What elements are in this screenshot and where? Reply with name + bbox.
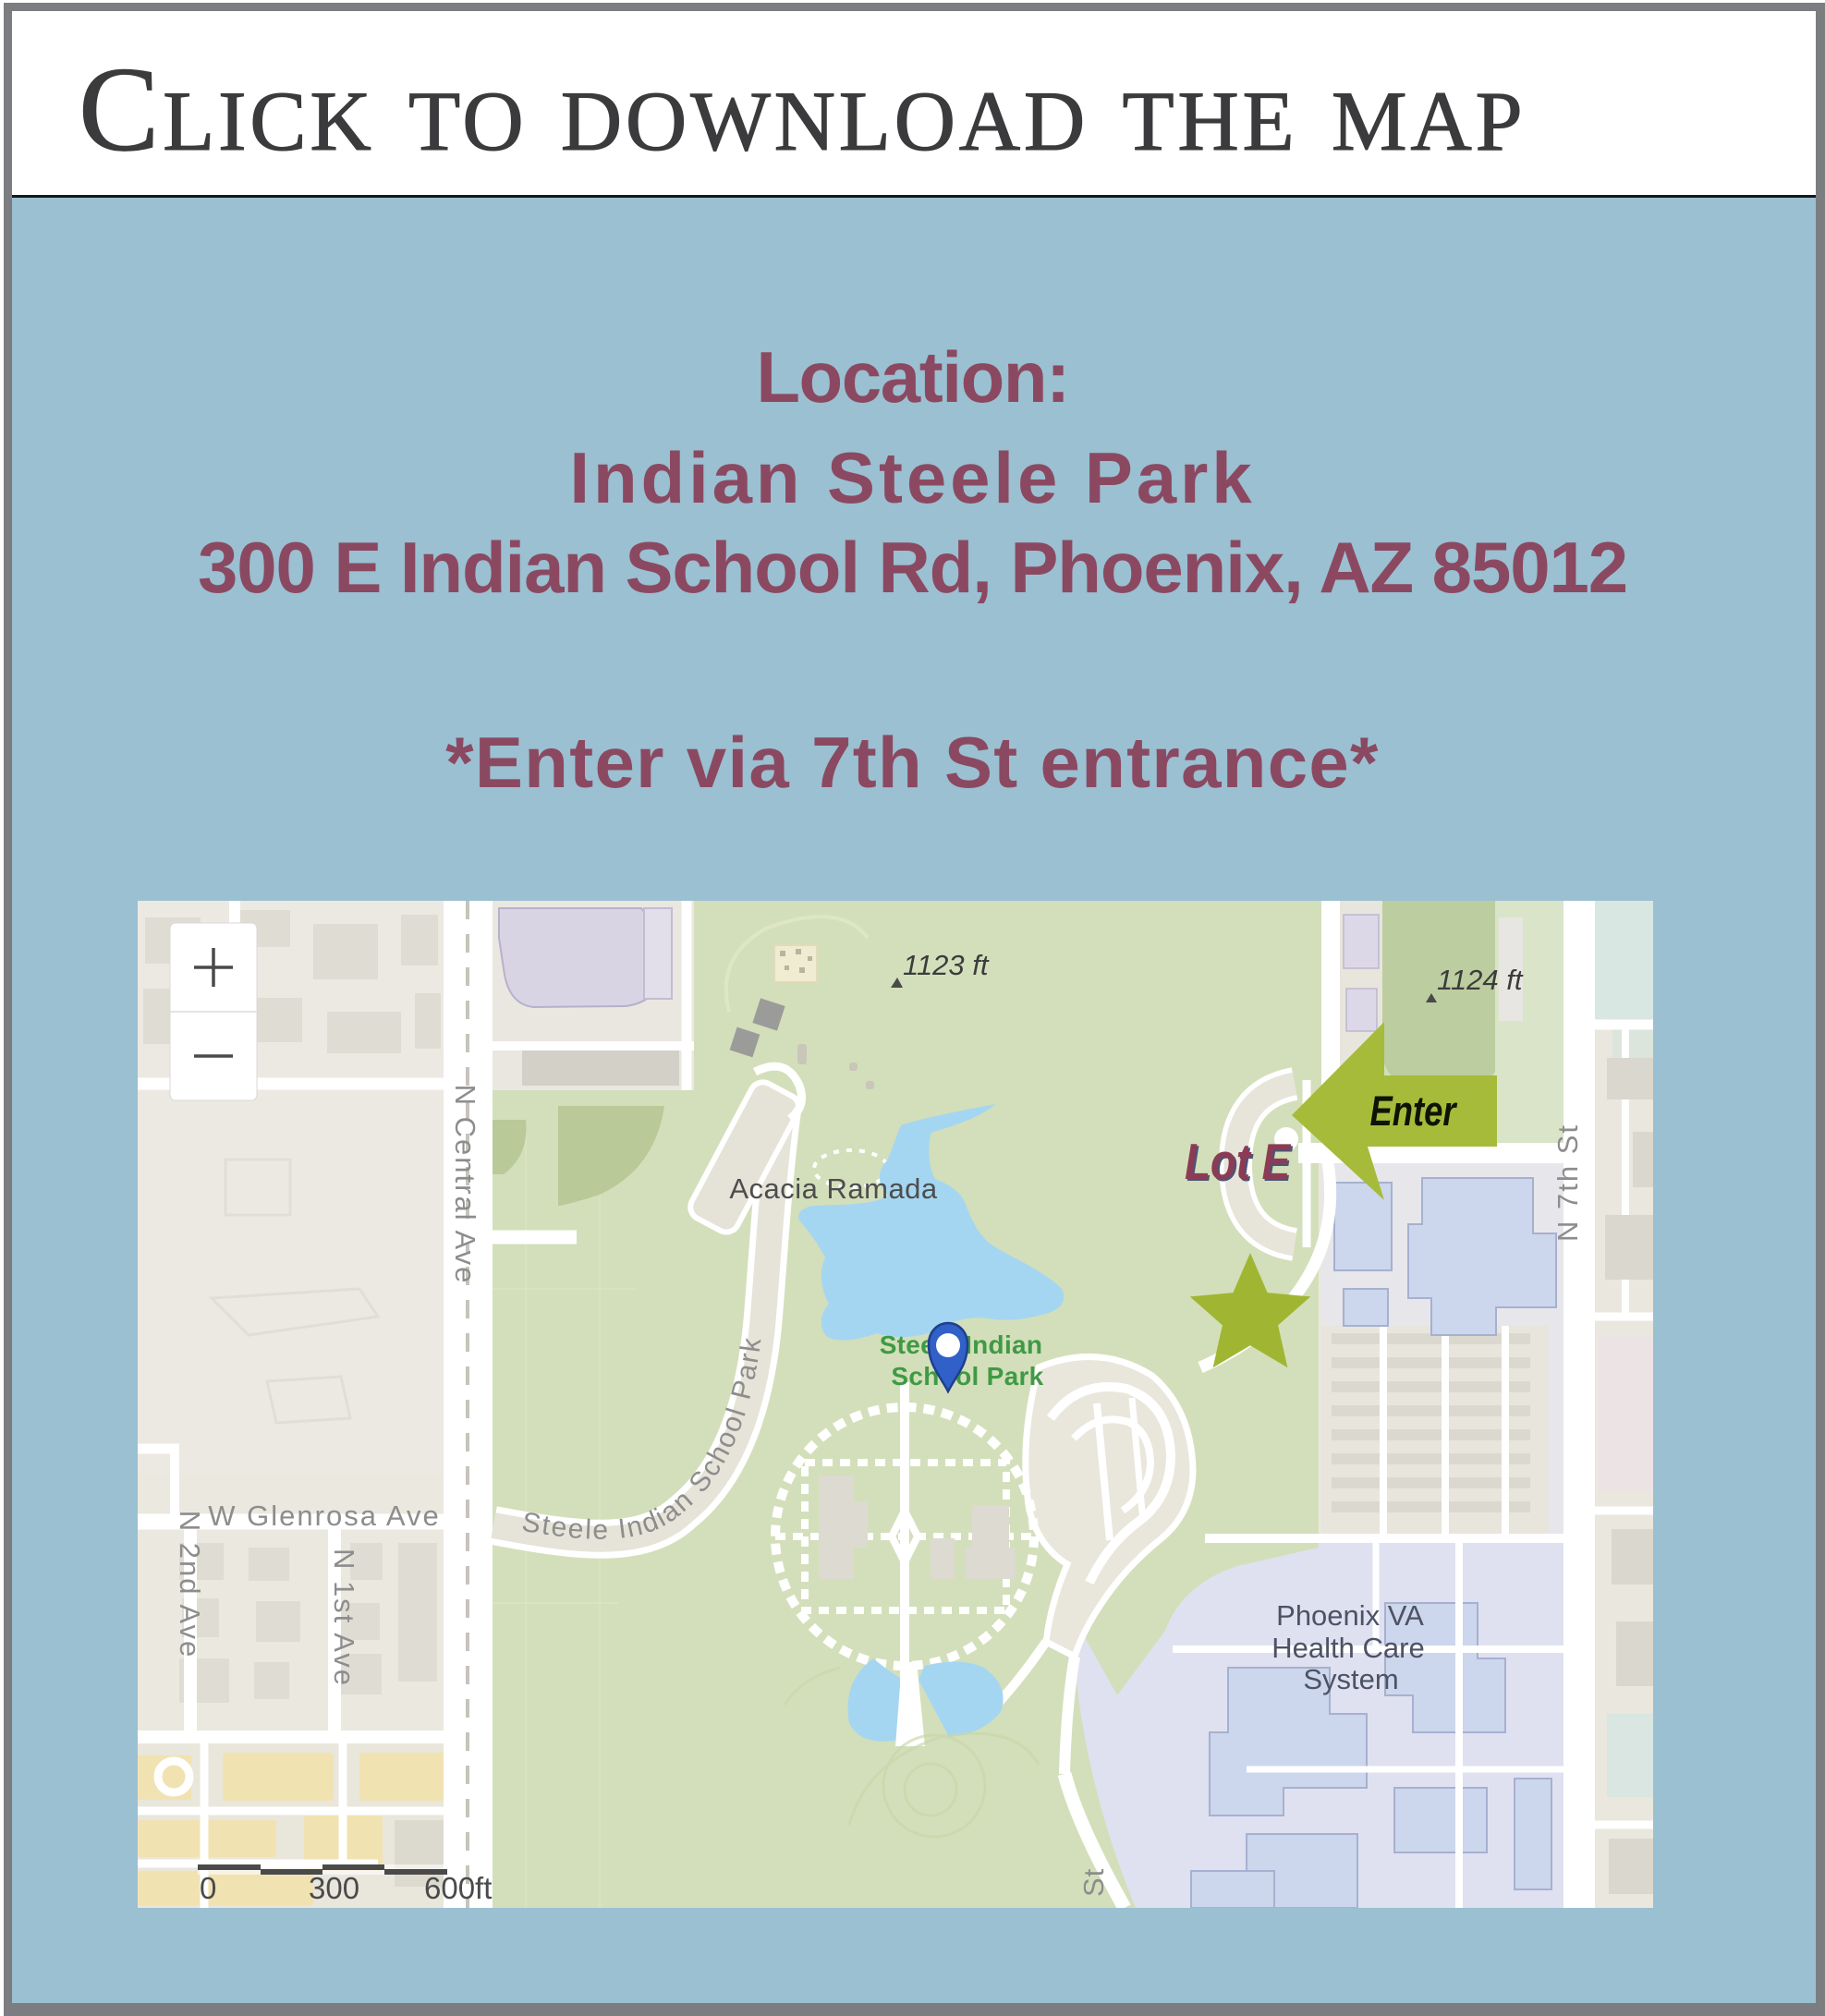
svg-text:N 2nd Ave: N 2nd Ave [174, 1511, 206, 1658]
svg-text:St: St [1077, 1868, 1110, 1897]
svg-text:W Glenrosa Ave: W Glenrosa Ave [208, 1500, 440, 1532]
svg-text:300: 300 [309, 1871, 359, 1905]
svg-text:0: 0 [200, 1871, 216, 1905]
svg-text:Phoenix VA: Phoenix VA [1276, 1599, 1424, 1632]
svg-text:N Central Ave: N Central Ave [449, 1085, 481, 1285]
svg-text:1124 ft: 1124 ft [1437, 964, 1524, 996]
svg-text:600ft: 600ft [424, 1871, 492, 1905]
svg-text:N 7th St: N 7th St [1551, 1123, 1584, 1242]
svg-text:System: System [1303, 1663, 1398, 1695]
svg-text:N 1st Ave: N 1st Ave [328, 1548, 360, 1687]
svg-text:1123 ft: 1123 ft [903, 949, 990, 981]
svg-text:Lot E: Lot E [1185, 1133, 1292, 1190]
svg-text:School Park: School Park [891, 1362, 1043, 1391]
svg-text:Enter: Enter [1370, 1087, 1458, 1135]
svg-text:Acacia Ramada: Acacia Ramada [729, 1172, 938, 1205]
svg-text:Health Care: Health Care [1271, 1632, 1424, 1664]
